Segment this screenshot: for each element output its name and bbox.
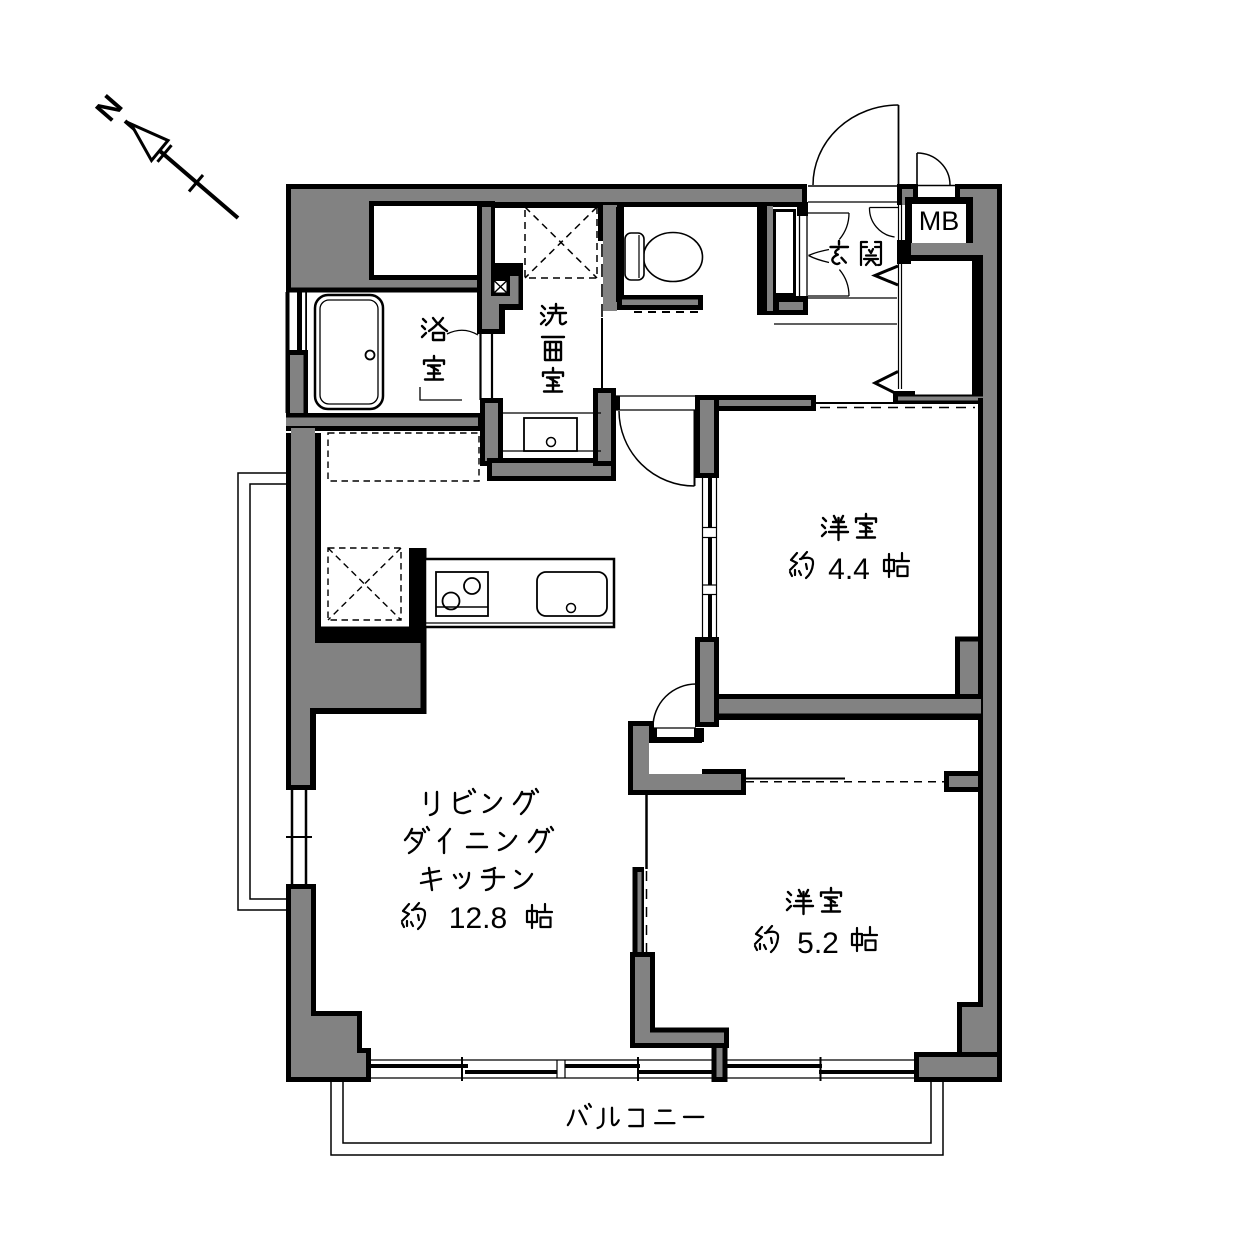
svg-text:4.4: 4.4 bbox=[828, 553, 870, 586]
svg-text:MB: MB bbox=[919, 206, 960, 236]
svg-text:12.8: 12.8 bbox=[449, 902, 507, 935]
svg-text:5.2: 5.2 bbox=[797, 927, 839, 960]
